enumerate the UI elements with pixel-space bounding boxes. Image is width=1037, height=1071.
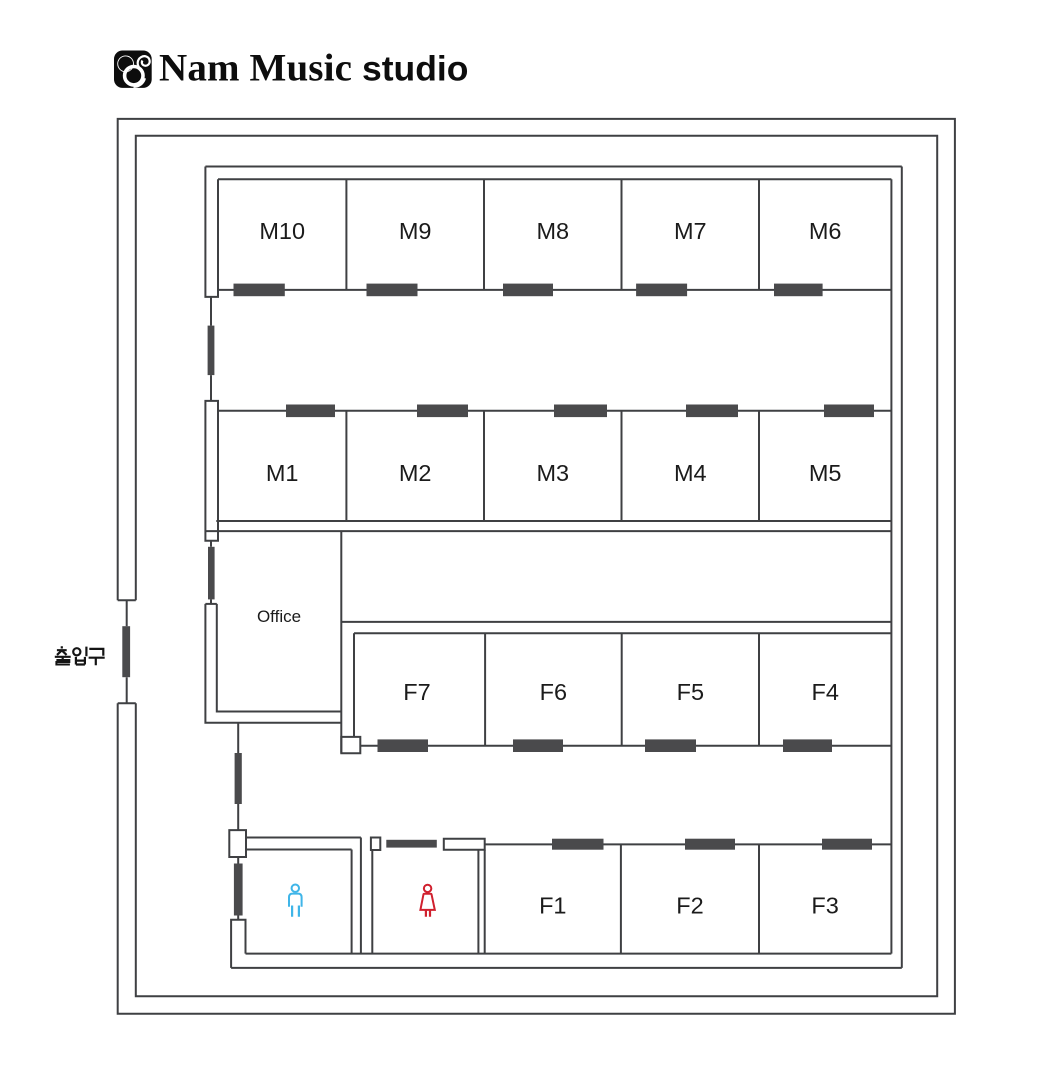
- svg-text:M5: M5: [809, 460, 842, 486]
- svg-text:M1: M1: [266, 460, 299, 486]
- svg-text:M10: M10: [259, 218, 305, 244]
- svg-text:F3: F3: [811, 893, 838, 919]
- svg-text:M6: M6: [809, 218, 842, 244]
- svg-text:F1: F1: [539, 893, 566, 919]
- svg-text:F4: F4: [811, 679, 838, 705]
- svg-text:F5: F5: [677, 679, 704, 705]
- svg-text:M9: M9: [399, 218, 432, 244]
- svg-text:Nam Music studio: Nam Music studio: [159, 47, 468, 90]
- svg-text:Office: Office: [257, 607, 301, 626]
- svg-text:M8: M8: [536, 218, 569, 244]
- svg-text:F7: F7: [403, 679, 430, 705]
- svg-text:M4: M4: [674, 460, 707, 486]
- svg-text:M3: M3: [536, 460, 569, 486]
- svg-text:F6: F6: [540, 679, 567, 705]
- svg-text:M7: M7: [674, 218, 707, 244]
- svg-text:F2: F2: [676, 893, 703, 919]
- svg-text:M2: M2: [399, 460, 432, 486]
